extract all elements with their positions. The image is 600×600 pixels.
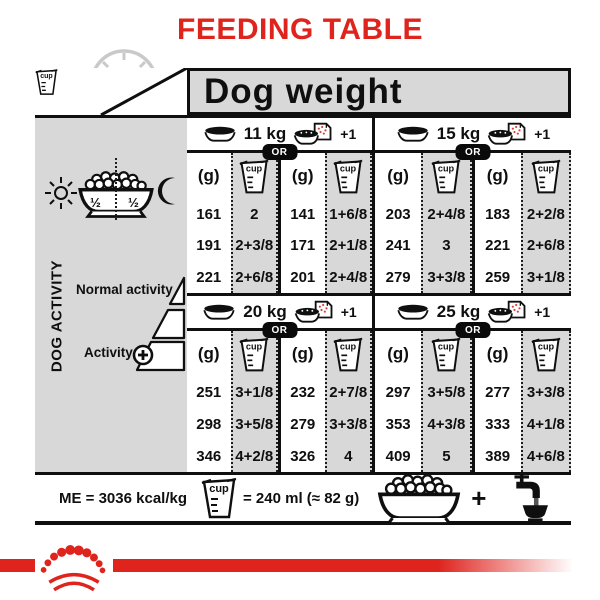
weight-section-11kg: 11 kg +1 OR (g) 161 191 221 2 2+3/8 2+6/… xyxy=(187,115,372,293)
cup-value: 2+6/8 xyxy=(233,262,277,293)
weight-label: 11 kg xyxy=(244,124,287,144)
section-columns: (g) 203 241 279 2+4/8 3 3+3/8 (g) 183 22… xyxy=(375,153,571,293)
bowl-split-line xyxy=(115,158,117,220)
grams-value: 277 xyxy=(475,377,521,409)
dog-activity-axis-label: DOG ACTIVITY xyxy=(49,260,66,372)
grams-value: 191 xyxy=(187,230,231,261)
section-columns: (g) 297 353 409 3+5/8 4+3/8 5 (g) 277 33… xyxy=(375,331,571,472)
cup-value: 3+5/8 xyxy=(423,377,469,409)
brand-band-right xyxy=(113,559,578,572)
feeding-table: Dog weight ½ ½ DOG ACTIVITY Normal a xyxy=(35,68,571,528)
bowl-pouch-icon xyxy=(293,122,333,147)
cup-value: 3+5/8 xyxy=(233,409,277,441)
cup-column: 3+5/8 4+3/8 5 xyxy=(421,331,471,472)
bowl-pouch-icon xyxy=(487,300,527,325)
plus-circle-icon xyxy=(132,344,154,366)
grams-header: (g) xyxy=(375,331,421,377)
cup-value: 2+3/8 xyxy=(233,230,277,261)
grams-value: 279 xyxy=(281,409,325,441)
cup-value: 3+3/8 xyxy=(327,409,371,441)
plus-one-label: +1 xyxy=(341,304,357,320)
cup-column: 3+1/8 3+5/8 4+2/8 xyxy=(231,331,279,472)
cup-value: 4+2/8 xyxy=(233,440,277,472)
grams-value: 171 xyxy=(281,230,325,261)
grams-column: (g) 277 333 389 xyxy=(472,331,521,472)
faucet-icon xyxy=(490,474,548,522)
measuring-cup-icon xyxy=(333,159,363,194)
grams-value: 279 xyxy=(375,262,421,293)
grams-column: (g) 203 241 279 xyxy=(375,153,421,293)
half-portion-label: ½ xyxy=(128,195,139,210)
cup-value: 3 xyxy=(423,230,469,261)
grams-value: 201 xyxy=(281,262,325,293)
weight-section-20kg: 20 kg +1 OR (g) 251 298 346 3+1/8 3+5/8 … xyxy=(187,293,372,472)
cup-value: 2+4/8 xyxy=(423,199,469,230)
page-title: FEEDING TABLE xyxy=(0,13,600,47)
cup-value: 2 xyxy=(233,199,277,230)
grams-value: 409 xyxy=(375,440,421,472)
section-columns: (g) 161 191 221 2 2+3/8 2+6/8 (g) 141 17… xyxy=(187,153,372,293)
measuring-cup-icon xyxy=(201,477,237,519)
or-badge: OR xyxy=(262,144,297,160)
cup-column: 2+2/8 2+6/8 3+1/8 xyxy=(521,153,571,293)
cup-value: 3+1/8 xyxy=(523,262,569,293)
plus-label: + xyxy=(471,483,486,514)
grams-value: 297 xyxy=(375,377,421,409)
grams-value: 203 xyxy=(375,199,421,230)
plus-one-label: +1 xyxy=(340,126,356,142)
sun-icon xyxy=(44,176,78,210)
or-badge: OR xyxy=(456,144,491,160)
dog-activity-sidebar: ½ ½ DOG ACTIVITY Normal activity Activit… xyxy=(35,115,187,472)
plus-one-label: +1 xyxy=(534,126,550,142)
table-corner-cell xyxy=(35,68,187,115)
plus-one-label: +1 xyxy=(534,304,550,320)
cup-value: 1+6/8 xyxy=(327,199,371,230)
cup-value: 4 xyxy=(327,440,371,472)
grams-value: 251 xyxy=(187,377,231,409)
section-columns: (g) 251 298 346 3+1/8 3+5/8 4+2/8 (g) 23… xyxy=(187,331,372,472)
cup-column: 2+4/8 3 3+3/8 xyxy=(421,153,471,293)
grams-column: (g) 297 353 409 xyxy=(375,331,421,472)
grams-header: (g) xyxy=(187,153,231,199)
measuring-cup-icon xyxy=(431,337,461,372)
grams-header: (g) xyxy=(187,331,231,377)
cup-column: 3+3/8 4+1/8 4+6/8 xyxy=(521,331,571,472)
empty-bowl-icon xyxy=(396,304,430,321)
cup-equivalence-label: = 240 ml (≈ 82 g) xyxy=(243,490,359,507)
me-kcal-label: ME = 3036 kcal/kg xyxy=(59,490,187,507)
weight-section-25kg: 25 kg +1 OR (g) 297 353 409 3+5/8 4+3/8 … xyxy=(372,293,571,472)
grams-value: 183 xyxy=(475,199,521,230)
grams-column: (g) 161 191 221 xyxy=(187,153,231,293)
weight-label: 25 kg xyxy=(437,302,480,322)
brand-band-left xyxy=(0,559,35,572)
feeding-table-page: FEEDING TABLE 24H Dog weight xyxy=(0,0,600,600)
cup-value: 3+3/8 xyxy=(523,377,569,409)
activity-label: Activity xyxy=(84,345,133,360)
grams-value: 389 xyxy=(475,440,521,472)
grams-value: 326 xyxy=(281,440,325,472)
cup-value: 3+3/8 xyxy=(423,262,469,293)
measuring-cup-icon xyxy=(531,337,561,372)
measuring-cup-icon xyxy=(239,337,269,372)
measuring-cup-icon xyxy=(35,68,58,96)
bowl-pouch-icon xyxy=(294,300,334,325)
kibble-bowl-icon xyxy=(373,472,465,525)
half-portion-label: ½ xyxy=(90,195,101,210)
measuring-cup-icon xyxy=(239,159,269,194)
cup-value: 2+4/8 xyxy=(327,262,371,293)
weight-label: 15 kg xyxy=(437,124,480,144)
or-label: OR xyxy=(465,325,481,336)
cup-value: 2+2/8 xyxy=(523,199,569,230)
empty-bowl-icon xyxy=(203,126,237,143)
weight-header-row: 20 kg +1 OR xyxy=(187,296,372,331)
weight-header-row: 15 kg +1 OR xyxy=(375,118,571,153)
grams-value: 333 xyxy=(475,409,521,441)
cup-value: 4+6/8 xyxy=(523,440,569,472)
grams-column: (g) 141 171 201 xyxy=(278,153,325,293)
cup-value: 2+7/8 xyxy=(327,377,371,409)
grams-value: 241 xyxy=(375,230,421,261)
measuring-cup-icon xyxy=(333,337,363,372)
measuring-cup-icon xyxy=(431,159,461,194)
grams-value: 141 xyxy=(281,199,325,230)
empty-bowl-icon xyxy=(202,304,236,321)
or-badge: OR xyxy=(262,322,297,338)
grams-column: (g) 183 221 259 xyxy=(472,153,521,293)
cup-column: 2 2+3/8 2+6/8 xyxy=(231,153,279,293)
cup-value: 4+3/8 xyxy=(423,409,469,441)
dog-weight-header: Dog weight xyxy=(187,68,571,115)
grams-value: 232 xyxy=(281,377,325,409)
grams-value: 346 xyxy=(187,440,231,472)
cup-value: 4+1/8 xyxy=(523,409,569,441)
grams-column: (g) 251 298 346 xyxy=(187,331,231,472)
empty-bowl-icon xyxy=(396,126,430,143)
grams-value: 259 xyxy=(475,262,521,293)
or-label: OR xyxy=(272,325,288,336)
grams-header: (g) xyxy=(375,153,421,199)
cup-value: 2+6/8 xyxy=(523,230,569,261)
moon-icon xyxy=(157,177,181,205)
weight-section-15kg: 15 kg +1 OR (g) 203 241 279 2+4/8 3 3+3/… xyxy=(372,115,571,293)
measuring-cup-icon xyxy=(531,159,561,194)
or-badge: OR xyxy=(456,322,491,338)
cup-value: 2+1/8 xyxy=(327,230,371,261)
or-label: OR xyxy=(465,147,481,158)
cup-value: 5 xyxy=(423,440,469,472)
grams-value: 221 xyxy=(187,262,231,293)
grams-value: 221 xyxy=(475,230,521,261)
grams-value: 161 xyxy=(187,199,231,230)
bowl-pouch-icon xyxy=(487,122,527,147)
weight-label: 20 kg xyxy=(243,302,286,322)
table-footer: ME = 3036 kcal/kg = 240 ml (≈ 82 g) + xyxy=(35,472,571,525)
weight-header-row: 11 kg +1 OR xyxy=(187,118,372,153)
crown-paw-logo xyxy=(36,542,112,594)
grams-value: 353 xyxy=(375,409,421,441)
or-label: OR xyxy=(272,147,288,158)
cup-value: 3+1/8 xyxy=(233,377,277,409)
grams-column: (g) 232 279 326 xyxy=(278,331,325,472)
grams-value: 298 xyxy=(187,409,231,441)
weight-header-row: 25 kg +1 OR xyxy=(375,296,571,331)
cup-column: 2+7/8 3+3/8 4 xyxy=(325,331,373,472)
cup-column: 1+6/8 2+1/8 2+4/8 xyxy=(325,153,373,293)
